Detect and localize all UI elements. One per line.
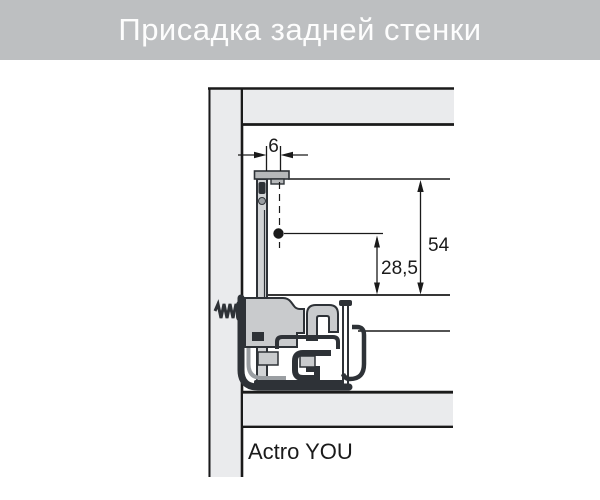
diagram-canvas: 6 28,5 54 Actro YOU bbox=[0, 60, 600, 500]
top-panel bbox=[208, 88, 454, 125]
mechanism-detail-3 bbox=[252, 332, 264, 341]
mechanism-pin bbox=[343, 303, 348, 386]
dim-6-arrow-left bbox=[281, 152, 294, 158]
title-bar: Присадка задней стенки bbox=[0, 0, 600, 60]
mechanism-pin-cap bbox=[339, 300, 352, 306]
mechanism-detail-2 bbox=[300, 356, 315, 367]
drill-hole-marker bbox=[273, 228, 283, 238]
mechanism-bottom-bar bbox=[254, 380, 344, 388]
dim-6-label: 6 bbox=[268, 136, 279, 157]
dim-28-5 bbox=[374, 236, 380, 295]
mechanism-hook bbox=[307, 305, 338, 340]
bottom-panel bbox=[243, 392, 453, 427]
back-panel bbox=[208, 88, 242, 477]
dim-54 bbox=[417, 180, 423, 295]
dim-54-label: 54 bbox=[428, 235, 450, 256]
dim-6-arrow-right bbox=[254, 152, 267, 158]
mechanism-right-curl bbox=[343, 327, 364, 379]
dim-28-5-label: 28,5 bbox=[381, 258, 418, 279]
page-title: Присадка задней стенки bbox=[118, 12, 481, 48]
product-label: Actro YOU bbox=[248, 439, 353, 464]
mechanism-detail-1 bbox=[258, 352, 278, 365]
diagram: 6 28,5 54 Actro YOU bbox=[0, 60, 600, 500]
